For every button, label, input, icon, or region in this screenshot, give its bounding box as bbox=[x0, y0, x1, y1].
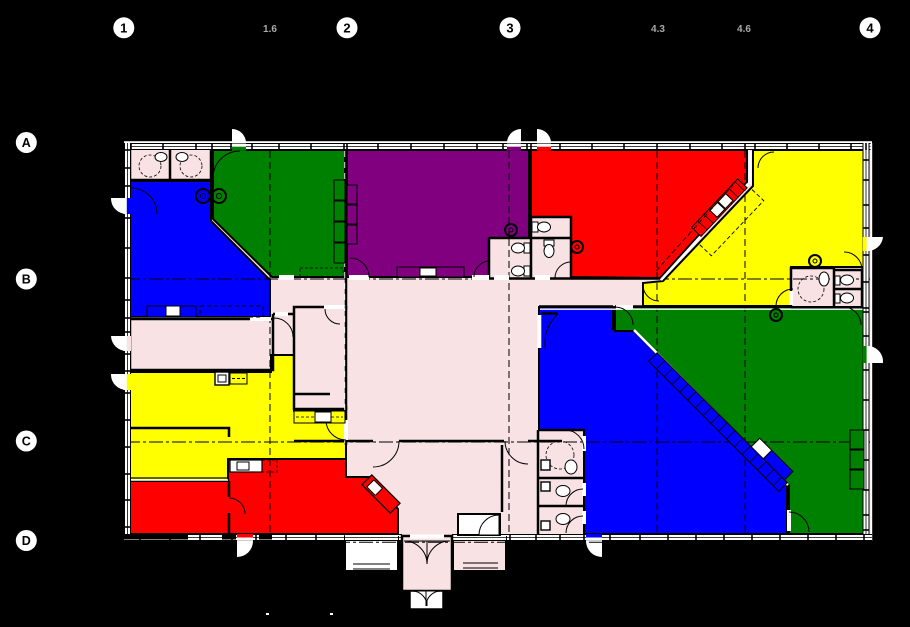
svg-text:C: C bbox=[22, 435, 31, 449]
svg-text:4.6: 4.6 bbox=[737, 24, 751, 35]
svg-text:D: D bbox=[22, 534, 31, 548]
svg-text:4: 4 bbox=[866, 20, 874, 35]
svg-text:A: A bbox=[22, 136, 31, 150]
svg-text:1.6: 1.6 bbox=[263, 24, 277, 35]
svg-text:4.3: 4.3 bbox=[651, 24, 665, 35]
svg-text:B: B bbox=[22, 273, 31, 287]
svg-text:1: 1 bbox=[120, 20, 127, 35]
svg-text:2: 2 bbox=[343, 20, 350, 35]
svg-text:3: 3 bbox=[506, 20, 513, 35]
